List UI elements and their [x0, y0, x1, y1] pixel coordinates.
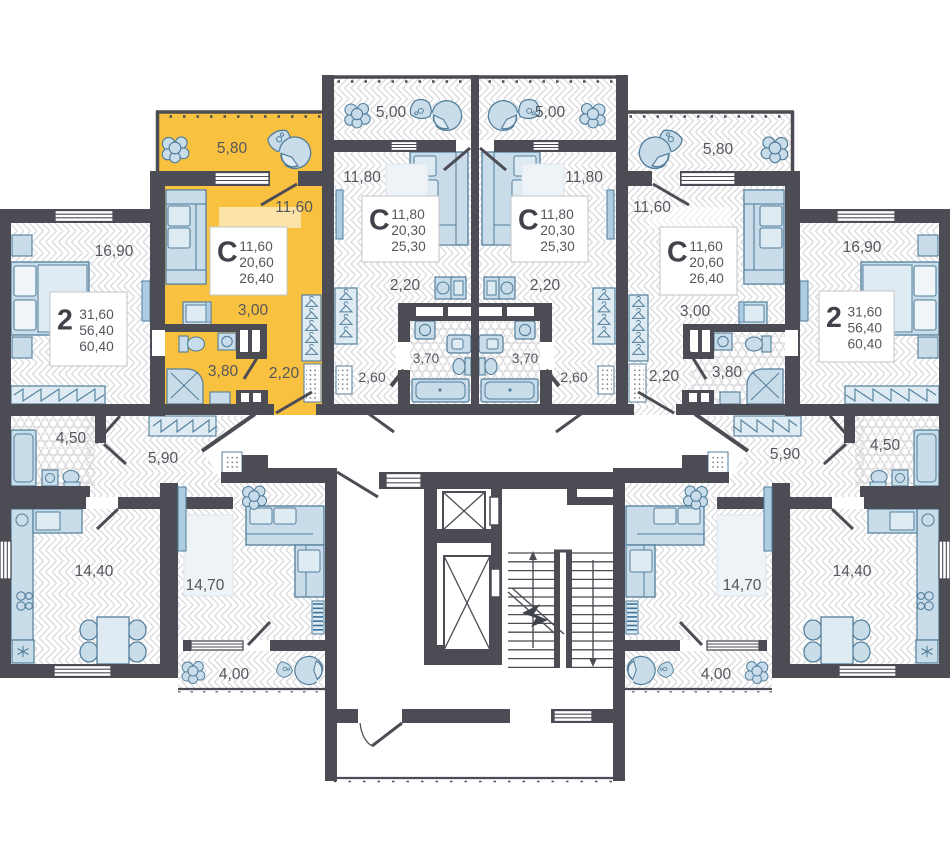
- svg-text:11,60: 11,60: [689, 239, 723, 254]
- svg-text:2,60: 2,60: [358, 369, 385, 385]
- svg-text:20,60: 20,60: [239, 255, 274, 270]
- svg-text:14,70: 14,70: [186, 577, 225, 594]
- svg-text:16,90: 16,90: [843, 239, 882, 256]
- svg-text:16,90: 16,90: [95, 243, 134, 260]
- svg-text:5,90: 5,90: [148, 450, 179, 467]
- svg-text:31,60: 31,60: [79, 307, 114, 322]
- svg-text:56,40: 56,40: [79, 323, 114, 338]
- svg-text:5,80: 5,80: [703, 141, 734, 158]
- svg-text:26,40: 26,40: [239, 271, 274, 286]
- svg-text:11,60: 11,60: [633, 199, 671, 216]
- svg-text:C: C: [369, 205, 390, 237]
- svg-text:25,30: 25,30: [540, 239, 575, 254]
- svg-text:11,80: 11,80: [565, 169, 603, 186]
- svg-text:11,60: 11,60: [275, 199, 313, 216]
- svg-text:31,60: 31,60: [848, 305, 883, 320]
- svg-text:3,00: 3,00: [680, 303, 711, 320]
- svg-text:5,80: 5,80: [217, 140, 248, 157]
- svg-text:11,80: 11,80: [540, 207, 574, 222]
- svg-text:4,00: 4,00: [219, 666, 250, 683]
- svg-text:20,30: 20,30: [540, 223, 575, 238]
- svg-text:4,50: 4,50: [870, 437, 901, 454]
- svg-text:2,20: 2,20: [390, 277, 421, 294]
- svg-text:2,20: 2,20: [269, 365, 300, 382]
- svg-text:25,30: 25,30: [391, 239, 426, 254]
- svg-text:3,80: 3,80: [208, 363, 239, 380]
- svg-text:2: 2: [57, 305, 73, 337]
- svg-text:4,00: 4,00: [701, 666, 732, 683]
- svg-text:C: C: [518, 205, 539, 237]
- svg-text:3,70: 3,70: [413, 351, 439, 366]
- svg-text:3,70: 3,70: [512, 351, 538, 366]
- svg-text:60,40: 60,40: [79, 339, 114, 354]
- svg-text:14,40: 14,40: [833, 563, 872, 580]
- svg-text:C: C: [667, 237, 688, 269]
- svg-text:2: 2: [826, 302, 842, 334]
- svg-text:11,80: 11,80: [391, 207, 425, 222]
- svg-text:60,40: 60,40: [848, 337, 883, 352]
- svg-text:11,60: 11,60: [239, 239, 273, 254]
- svg-text:3,80: 3,80: [712, 364, 743, 381]
- svg-text:5,00: 5,00: [376, 104, 407, 121]
- svg-text:20,60: 20,60: [689, 255, 724, 270]
- svg-text:2,60: 2,60: [560, 369, 587, 385]
- svg-text:11,80: 11,80: [343, 169, 381, 186]
- svg-text:2,20: 2,20: [649, 368, 680, 385]
- svg-text:56,40: 56,40: [848, 321, 883, 336]
- svg-text:3,00: 3,00: [238, 302, 269, 319]
- svg-text:4,50: 4,50: [56, 430, 87, 447]
- svg-text:26,40: 26,40: [689, 271, 724, 286]
- svg-text:2,20: 2,20: [530, 277, 561, 294]
- svg-text:5,90: 5,90: [770, 446, 801, 463]
- svg-text:5,00: 5,00: [535, 104, 566, 121]
- svg-text:C: C: [217, 237, 238, 269]
- svg-text:14,70: 14,70: [723, 577, 762, 594]
- svg-text:14,40: 14,40: [75, 563, 114, 580]
- svg-text:20,30: 20,30: [391, 223, 426, 238]
